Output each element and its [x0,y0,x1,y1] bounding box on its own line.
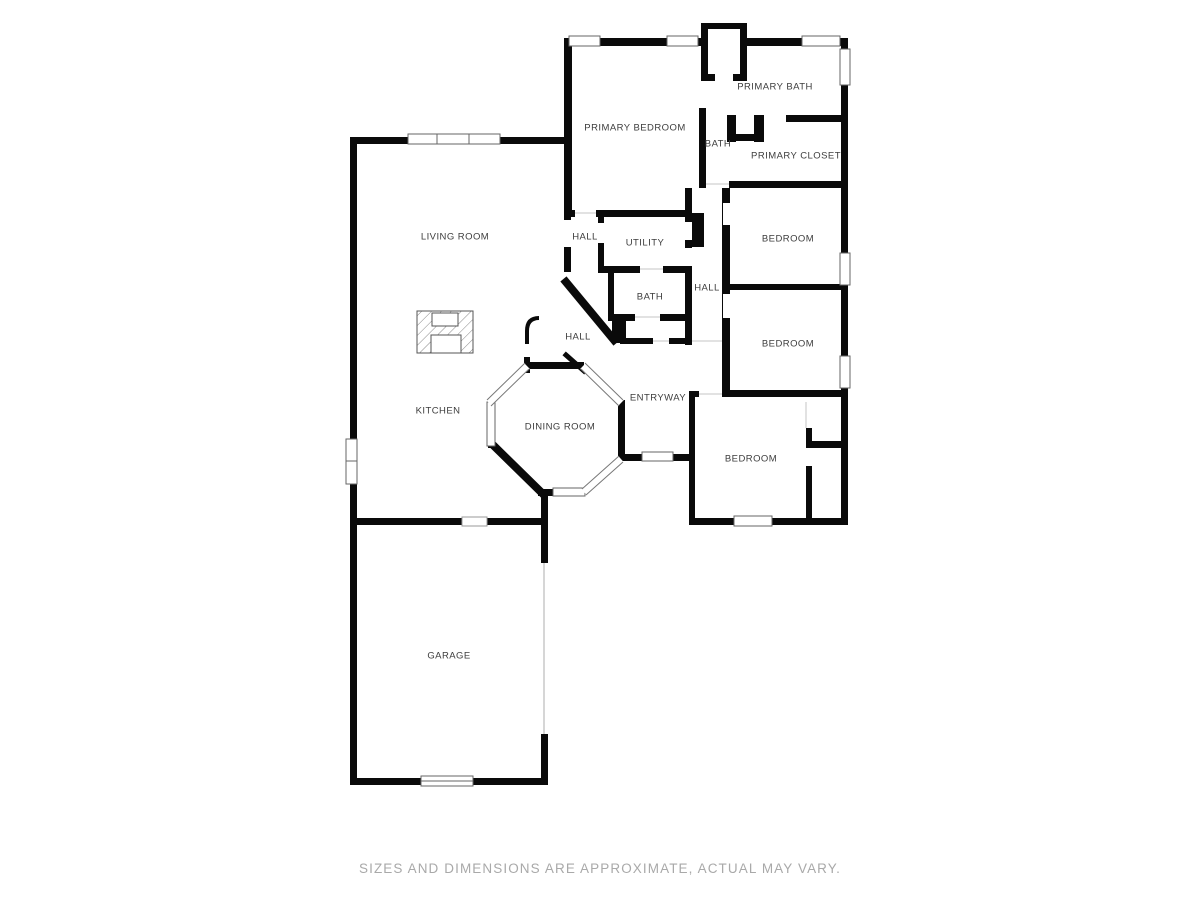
room-label-primary-closet: PRIMARY CLOSET [751,151,841,162]
room-label-bedroom-3: BEDROOM [725,454,777,465]
room-label-hall-north: HALL [572,232,598,243]
room-label-bath-middle: BATH [637,292,663,303]
room-label-utility: UTILITY [626,238,665,249]
door-swing-icon [527,318,539,344]
floor-plan-page: PRIMARY BEDROOM PRIMARY BATH BATH PRIMAR… [0,0,1200,900]
fireplace-icon [417,311,473,353]
diagonal-walls [493,282,614,493]
room-label-bath-small: BATH [705,139,731,150]
floor-plan-drawing [0,0,1200,900]
room-label-kitchen: KITCHEN [416,406,461,417]
room-label-bedroom-2: BEDROOM [762,339,814,350]
windows [346,36,850,526]
room-label-living-room: LIVING ROOM [421,232,489,243]
room-label-hall-center: HALL [565,332,591,343]
room-label-hall-east: HALL [694,283,720,294]
room-label-entryway: ENTRYWAY [630,393,686,404]
room-label-dining-room: DINING ROOM [525,422,595,433]
room-label-primary-bedroom: PRIMARY BEDROOM [584,123,685,134]
disclaimer-text: SIZES AND DIMENSIONS ARE APPROXIMATE, AC… [359,861,841,876]
garage-door [421,776,473,786]
room-label-primary-bath: PRIMARY BATH [737,82,813,93]
room-label-bedroom-1: BEDROOM [762,234,814,245]
room-label-garage: GARAGE [427,651,470,662]
